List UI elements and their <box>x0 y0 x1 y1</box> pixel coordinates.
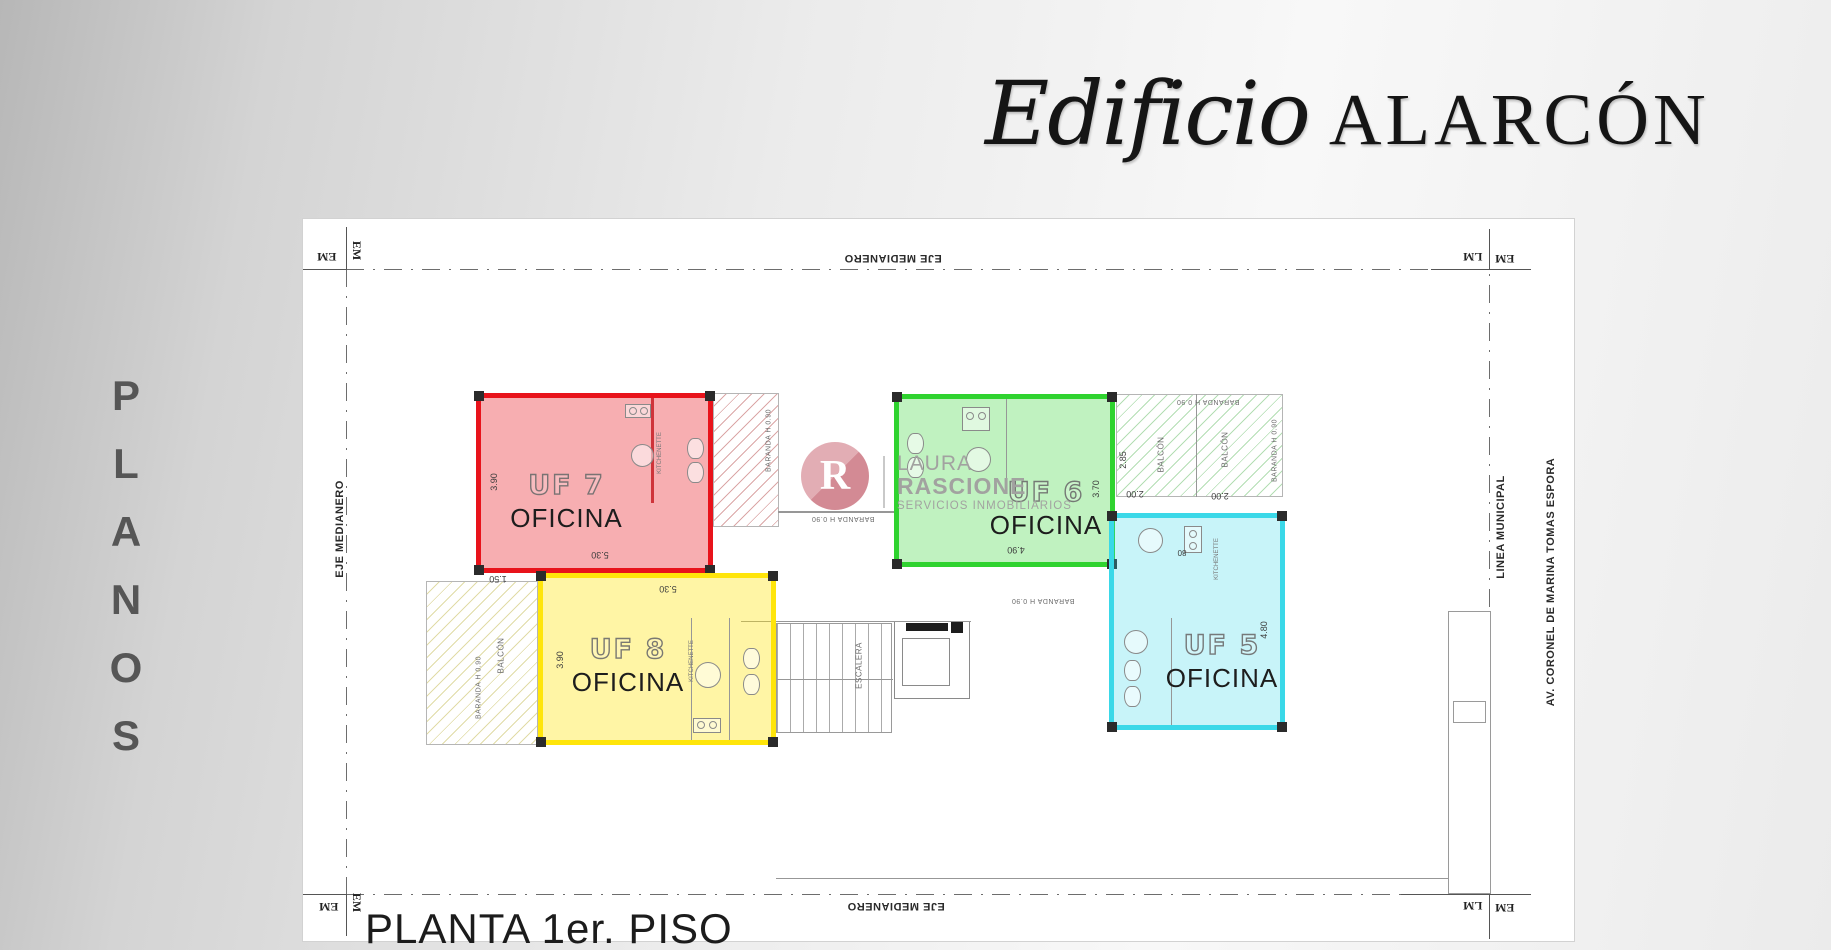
column-point <box>892 559 902 569</box>
column-point <box>1107 392 1117 402</box>
kitchenette-label: KITCHENETTE <box>657 432 663 474</box>
mark-lm: LM <box>1463 249 1482 264</box>
tick-line <box>346 894 347 936</box>
balcony-label: BALCÓN <box>1221 420 1230 480</box>
mark-em: EM <box>1495 251 1514 266</box>
label-linea-municipal: LINEA MUNICIPAL <box>1495 457 1507 597</box>
elevator-car <box>902 638 950 686</box>
use-label: OFICINA <box>489 503 644 534</box>
tick-line <box>1401 894 1531 895</box>
page-background: Edificio ALARCÓN P L A N O S EM EM LM EM… <box>0 0 1831 950</box>
dim-height-uf8: 3.90 <box>555 635 565 685</box>
kitchenette-counter <box>962 407 990 431</box>
column-point <box>1107 511 1117 521</box>
burner-icon <box>640 407 648 415</box>
boundary-line-top <box>346 269 1489 270</box>
mark-em: EM <box>317 249 336 264</box>
mark-em: EM <box>349 241 364 260</box>
balcony-uf6 <box>1116 394 1283 497</box>
tick-line <box>346 227 347 269</box>
toilet-icon <box>743 648 760 669</box>
balcony-divider <box>1196 394 1197 497</box>
sink-icon <box>1138 528 1163 553</box>
unit-label: UF 7 <box>489 470 644 501</box>
column-point <box>1107 722 1117 732</box>
elevator-motor <box>951 621 963 633</box>
watermark-name1: LAURA <box>897 453 972 474</box>
toilet-icon <box>1124 660 1141 681</box>
entry-strip <box>1448 611 1491 894</box>
planos-letter: O <box>103 638 149 706</box>
column-point <box>474 565 484 575</box>
room-uf5: KITCHENETTE 80 UF 5 OFICINA 4.80 <box>1109 513 1285 730</box>
mark-lm: LM <box>1463 898 1482 913</box>
column-point <box>705 391 715 401</box>
label-eje-medianero-bottom: EJE MEDIANERO <box>826 900 966 912</box>
sink-icon <box>631 444 654 467</box>
balcony-railing-label: BARANDA H 0.90 <box>766 401 773 481</box>
staircase-label: ESCALERA <box>855 626 864 706</box>
dim-balcony-w2-uf6: 2.00 <box>1200 491 1240 501</box>
label-avenue: AV. CORONEL DE MARINA TOMAS ESPORA <box>1545 442 1557 722</box>
toilet-icon <box>907 433 924 454</box>
dim-height-uf7: 3.90 <box>489 457 499 507</box>
room-uf8-labels: UF 8 OFICINA <box>548 634 708 698</box>
balcony-railing-label: BARANDA H 0.90 <box>1168 398 1248 405</box>
tick-line <box>303 269 347 270</box>
partition-wall <box>729 618 730 740</box>
walkway-railing <box>778 511 894 513</box>
planos-letter: A <box>103 502 149 570</box>
side-label-planos: P L A N O S <box>103 366 149 774</box>
dim-balcony-uf8: 1.50 <box>478 574 518 584</box>
tick-line <box>1489 894 1490 939</box>
dim-side-uf5: 4.80 <box>1259 605 1269 655</box>
building-title-script: Edificio <box>985 62 1309 165</box>
watermark-logo: R <box>801 442 869 510</box>
use-label: OFICINA <box>965 510 1127 541</box>
boundary-line-bottom <box>346 894 1489 895</box>
planos-letter: L <box>103 434 149 502</box>
burner-icon <box>629 407 637 415</box>
balcony-label: BALCÓN <box>1157 425 1166 485</box>
watermark-tagline: SERVICIOS INMOBILIARIOS <box>897 501 1072 513</box>
unit-label: UF 8 <box>548 634 708 665</box>
kitchenette-label: KITCHENETTE <box>1214 538 1220 580</box>
tick-line <box>1489 229 1490 269</box>
dim-kitchen-uf5: 80 <box>1172 548 1192 557</box>
floor-title: PLANTA 1er. PISO <box>365 905 733 950</box>
use-label: OFICINA <box>548 667 708 698</box>
mark-em: EM <box>319 899 338 914</box>
mark-em: EM <box>1495 900 1514 915</box>
staircase <box>776 623 892 733</box>
dim-width-uf7: 5.30 <box>575 550 625 560</box>
use-label: OFICINA <box>1142 663 1302 694</box>
balcony-railing-label: BARANDA H 0.90 <box>1272 411 1279 491</box>
elevator-counterweight <box>906 623 948 631</box>
column-point <box>1277 511 1287 521</box>
bidet-icon <box>1124 686 1141 707</box>
dim-height-uf6: 3.70 <box>1091 464 1101 514</box>
corridor-railing-label: BARANDA H 0.90 <box>1003 597 1083 604</box>
tick-line <box>303 894 347 895</box>
unit-label: UF 5 <box>1142 630 1302 661</box>
burner-icon <box>978 412 986 420</box>
column-point <box>536 571 546 581</box>
column-point <box>536 737 546 747</box>
floorplan-sheet: EM EM LM EM EM EM LM EM EJE MEDIANERO EJ… <box>302 218 1575 942</box>
watermark-divider <box>883 456 885 508</box>
column-point <box>1277 722 1287 732</box>
partition-wall <box>1006 399 1007 484</box>
mark-em: EM <box>349 893 364 912</box>
room-uf5-labels: UF 5 OFICINA <box>1142 630 1302 694</box>
column-point <box>892 392 902 402</box>
toilet-icon <box>687 438 704 459</box>
planos-letter: P <box>103 366 149 434</box>
burner-icon <box>697 721 705 729</box>
column-point <box>768 571 778 581</box>
boundary-line-left <box>346 269 347 894</box>
building-title-caps: ALARCÓN <box>1329 78 1710 162</box>
dim-width-uf6: 4.90 <box>991 545 1041 555</box>
tick-line <box>1431 269 1531 270</box>
planos-letter: S <box>103 706 149 774</box>
watermark-name2: RASCIONE <box>897 475 1026 498</box>
label-eje-medianero-top: EJE MEDIANERO <box>823 252 963 264</box>
bidet-icon <box>743 674 760 695</box>
dim-width-uf8: 5.30 <box>643 584 693 594</box>
walkway-railing-label: BARANDA H 0.90 <box>803 515 883 522</box>
bidet-icon <box>687 462 704 483</box>
balcony-railing-label: BARANDA H 0.90 <box>476 648 483 728</box>
label-eje-medianero-left: EJE MEDIANERO <box>334 459 346 599</box>
burner-icon <box>966 412 974 420</box>
entry-detail <box>1453 701 1486 723</box>
watermark-initial: R <box>820 452 850 500</box>
balcony-label: BALCÓN <box>497 626 506 686</box>
column-point <box>768 737 778 747</box>
room-uf7-labels: UF 7 OFICINA <box>489 470 644 534</box>
facade-line <box>776 878 1450 879</box>
room-uf7: KITCHENETTE UF 7 OFICINA 3.90 5.30 <box>476 393 713 573</box>
stair-landing-line <box>777 679 893 680</box>
burner-icon <box>1189 530 1197 538</box>
room-uf8: KITCHENETTE UF 8 OFICINA 3.90 5.30 <box>538 573 776 745</box>
burner-icon <box>709 721 717 729</box>
planos-letter: N <box>103 570 149 638</box>
column-point <box>474 391 484 401</box>
building-title: Edificio ALARCÓN <box>985 62 1710 165</box>
